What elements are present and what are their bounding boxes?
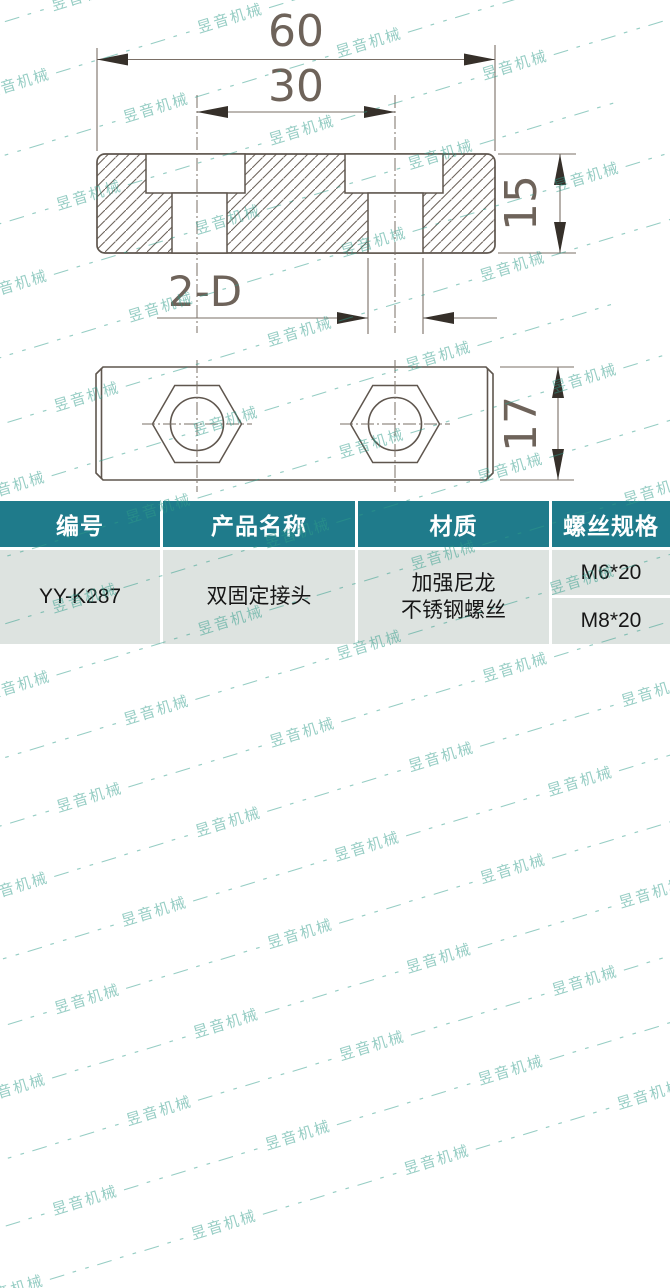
material-line-1: 加强尼龙: [412, 570, 496, 597]
cell-screw-specs: M6*20 M8*20: [552, 550, 670, 644]
dimension-label-60: 60: [268, 6, 324, 57]
arrowhead-icon: [464, 54, 495, 66]
counterbore-left: [146, 154, 245, 193]
spec-table: 编号 产品名称 材质 螺丝规格 YY-K287 双固定接头 加强尼龙 不锈钢螺丝…: [0, 501, 670, 644]
technical-drawing: 60 30 15 2-D: [0, 0, 670, 500]
arrowhead-icon: [552, 449, 564, 480]
arrowhead-icon: [364, 106, 395, 118]
arrowhead-icon: [554, 154, 566, 185]
header-material: 材质: [358, 501, 549, 547]
dimension-thickness: 15: [496, 154, 576, 253]
spec-m8: M8*20: [552, 598, 670, 644]
arrowhead-icon: [552, 367, 564, 398]
arrowhead-icon: [337, 312, 368, 324]
hole-left: [172, 193, 227, 253]
watermark-text: 昱音机械 — - - — - - — - - 昱音机械 — - - — - - …: [0, 594, 670, 1171]
dimension-hole-pitch: 30: [197, 61, 395, 118]
watermark-text: 昱音机械 — - - — - - — - - 昱音机械 — - - — - - …: [0, 839, 670, 1288]
cell-code: YY-K287: [0, 550, 160, 644]
header-product-name: 产品名称: [163, 501, 355, 547]
material-line-2: 不锈钢螺丝: [401, 597, 506, 624]
cell-product-name: 双固定接头: [163, 550, 355, 644]
header-screw-spec: 螺丝规格: [552, 501, 670, 547]
cell-material: 加强尼龙 不锈钢螺丝: [358, 550, 549, 644]
hole-diameter-callout: 2-D: [157, 258, 497, 334]
arrowhead-icon: [97, 54, 128, 66]
dimension-label-15: 15: [496, 175, 547, 231]
arrowhead-icon: [423, 312, 454, 324]
section-view: [97, 95, 495, 333]
header-code: 编号: [0, 501, 160, 547]
dimension-label-17: 17: [496, 396, 547, 452]
hole-callout-label: 2-D: [168, 267, 242, 316]
counterbore-right: [345, 154, 443, 193]
arrowhead-icon: [554, 222, 566, 253]
plan-view: [96, 360, 493, 492]
arrowhead-icon: [197, 106, 228, 118]
watermark-text: 昱音机械 — - - — - - — - - 昱音机械 — - - — - - …: [0, 716, 670, 1282]
spec-m6: M6*20: [552, 550, 670, 595]
dimension-label-30: 30: [268, 61, 324, 112]
watermark-text: 昱音机械 — - - — - - — - - 昱音机械 — - - — - - …: [0, 655, 670, 1260]
watermark-text: 昱音机械 — - - — - - — - - 昱音机械 — - - — - - …: [0, 777, 670, 1288]
dimension-body-height: 17: [496, 367, 574, 480]
